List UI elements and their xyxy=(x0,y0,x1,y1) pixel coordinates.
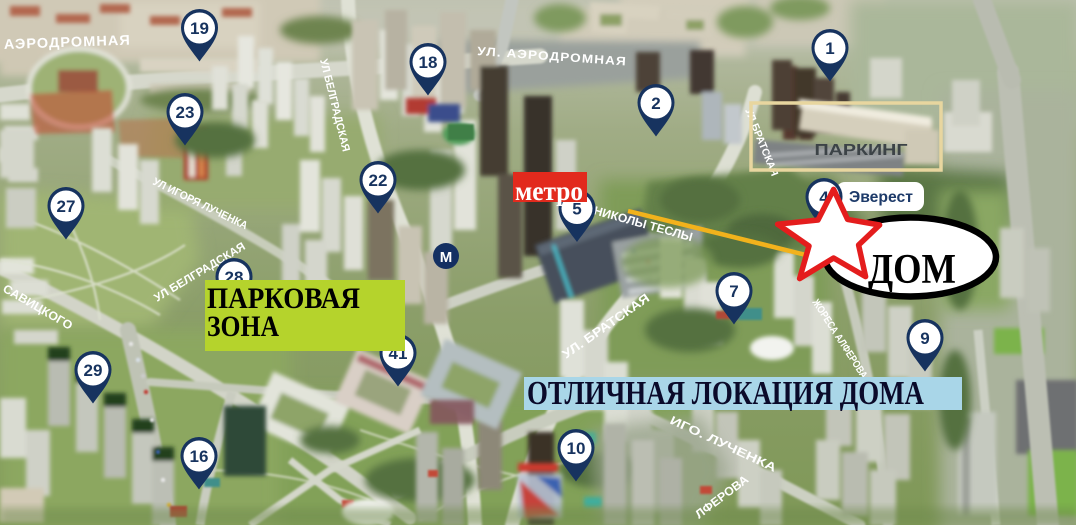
svg-text:Эверест: Эверест xyxy=(849,189,913,206)
svg-text:ДОМ: ДОМ xyxy=(868,246,956,293)
svg-text:ОТЛИЧНАЯ ЛОКАЦИЯ ДОМА: ОТЛИЧНАЯ ЛОКАЦИЯ ДОМА xyxy=(527,375,924,412)
svg-text:19: 19 xyxy=(190,19,209,38)
svg-text:29: 29 xyxy=(84,361,103,380)
svg-text:7: 7 xyxy=(729,282,738,301)
svg-text:9: 9 xyxy=(920,329,929,348)
svg-text:16: 16 xyxy=(190,447,209,466)
svg-text:М: М xyxy=(440,249,453,266)
svg-text:метро: метро xyxy=(515,175,583,206)
svg-text:10: 10 xyxy=(567,439,586,458)
svg-text:18: 18 xyxy=(419,53,438,72)
svg-text:23: 23 xyxy=(176,103,195,122)
svg-text:2: 2 xyxy=(651,94,660,113)
svg-text:22: 22 xyxy=(369,171,388,190)
svg-text:ЗОНА: ЗОНА xyxy=(207,310,279,343)
svg-text:27: 27 xyxy=(57,197,76,216)
svg-text:ПАРКИНГ: ПАРКИНГ xyxy=(815,142,908,159)
svg-text:1: 1 xyxy=(825,39,834,58)
